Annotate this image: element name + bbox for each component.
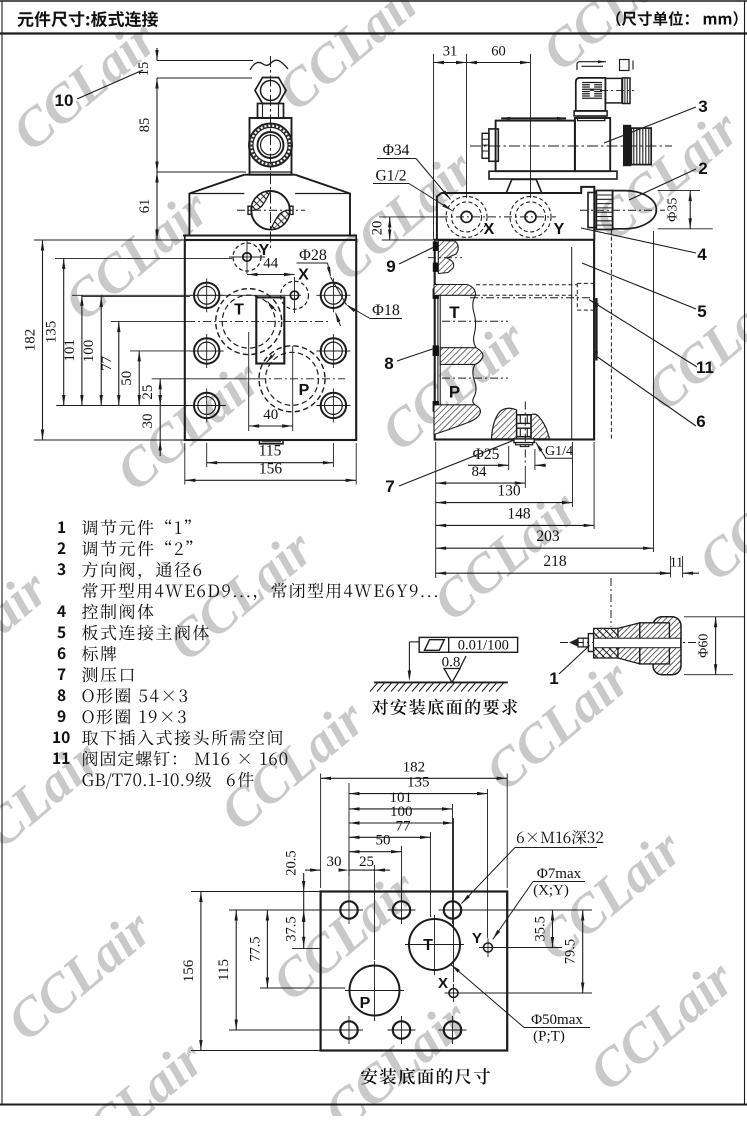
svg-text:31: 31 — [443, 44, 458, 60]
svg-text:130: 130 — [497, 483, 521, 500]
svg-text:2: 2 — [698, 159, 707, 178]
svg-text:11: 11 — [696, 358, 714, 377]
svg-text:Φ7max: Φ7max — [537, 866, 582, 882]
svg-text:148: 148 — [507, 505, 531, 522]
svg-text:115: 115 — [216, 959, 232, 981]
svg-text:84: 84 — [472, 464, 488, 480]
svg-text:Φ28: Φ28 — [299, 247, 327, 264]
svg-text:9: 9 — [386, 257, 395, 276]
svg-text:61: 61 — [137, 199, 153, 214]
svg-text:203: 203 — [536, 528, 560, 545]
svg-text:44: 44 — [263, 256, 279, 272]
svg-text:77.5: 77.5 — [247, 936, 263, 961]
svg-text:40: 40 — [263, 407, 278, 423]
svg-text:10: 10 — [55, 91, 74, 110]
svg-text:25: 25 — [140, 385, 156, 400]
svg-text:X: X — [438, 975, 448, 992]
svg-text:P: P — [360, 995, 371, 1012]
svg-text:50: 50 — [119, 371, 135, 386]
svg-text:6: 6 — [696, 412, 705, 431]
svg-text:182: 182 — [403, 759, 426, 775]
svg-text:135: 135 — [44, 321, 60, 344]
svg-text:5: 5 — [697, 302, 706, 321]
svg-text:Φ35: Φ35 — [666, 198, 681, 222]
svg-text:(X;Y): (X;Y) — [533, 883, 569, 899]
svg-text:G1/2: G1/2 — [376, 168, 407, 185]
svg-text:G1/4: G1/4 — [545, 444, 573, 459]
svg-text:X: X — [484, 221, 495, 238]
svg-text:8: 8 — [384, 354, 393, 373]
svg-text:3: 3 — [698, 97, 707, 116]
svg-text:Y: Y — [472, 930, 482, 947]
svg-text:77: 77 — [99, 356, 115, 372]
svg-text:T: T — [234, 302, 244, 319]
svg-text:50: 50 — [376, 833, 391, 849]
svg-text:P: P — [299, 382, 310, 399]
svg-text:Φ60: Φ60 — [697, 634, 712, 658]
svg-text:(P;T): (P;T) — [533, 1029, 565, 1045]
svg-text:30: 30 — [327, 854, 342, 870]
svg-text:1: 1 — [549, 669, 558, 688]
svg-text:Φ34: Φ34 — [383, 142, 410, 159]
svg-text:Φ50max: Φ50max — [531, 1012, 583, 1028]
svg-text:85: 85 — [137, 118, 153, 133]
svg-text:25: 25 — [359, 854, 374, 870]
svg-text:Φ18: Φ18 — [372, 302, 400, 319]
svg-text:4: 4 — [697, 245, 707, 264]
svg-text:135: 135 — [407, 775, 430, 791]
svg-text:P: P — [449, 383, 460, 402]
svg-text:X: X — [298, 267, 309, 284]
svg-text:100: 100 — [81, 340, 97, 363]
svg-text:77: 77 — [396, 818, 412, 834]
svg-text:115: 115 — [259, 443, 282, 460]
svg-text:15: 15 — [136, 62, 152, 77]
svg-text:35.5: 35.5 — [533, 916, 549, 941]
svg-text:218: 218 — [543, 553, 567, 570]
svg-text:20: 20 — [370, 221, 386, 236]
svg-text:101: 101 — [62, 339, 78, 362]
svg-text:30: 30 — [140, 414, 156, 429]
svg-text:T: T — [449, 303, 460, 322]
svg-text:156: 156 — [181, 959, 197, 982]
svg-text:60: 60 — [491, 44, 506, 60]
svg-text:T: T — [423, 937, 433, 954]
svg-text:79.5: 79.5 — [563, 939, 579, 964]
svg-text:37.5: 37.5 — [284, 916, 300, 941]
svg-text:11: 11 — [670, 555, 683, 570]
svg-text:20.5: 20.5 — [284, 850, 300, 875]
svg-text:7: 7 — [385, 477, 394, 496]
svg-text:156: 156 — [259, 460, 283, 477]
svg-text:0.01/100: 0.01/100 — [458, 638, 509, 654]
svg-text:Y: Y — [554, 221, 565, 238]
svg-text:182: 182 — [23, 329, 39, 352]
